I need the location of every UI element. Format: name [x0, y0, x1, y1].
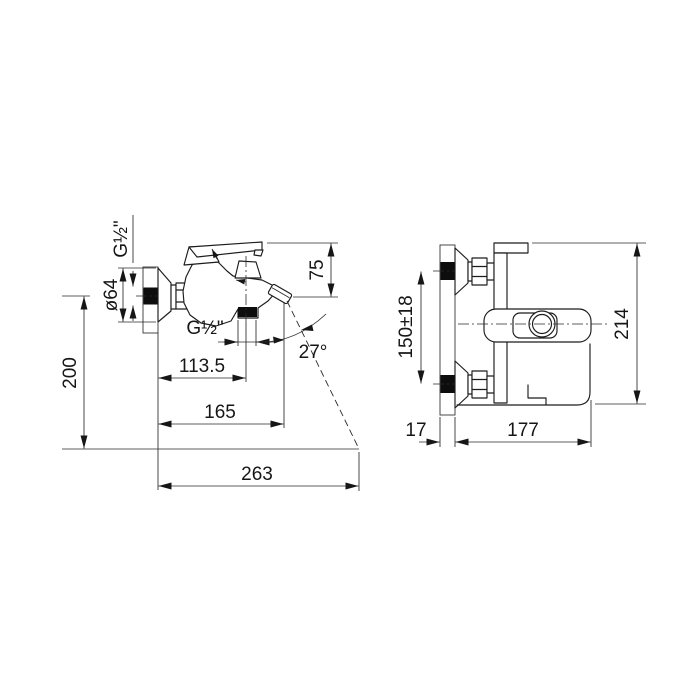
spout-outlet	[238, 307, 257, 317]
dim-label-stream-reach: 263	[241, 464, 273, 485]
faucet-body	[183, 262, 276, 326]
lever-tip	[254, 250, 263, 256]
water-stream-line	[287, 301, 359, 449]
dimension-wall-and-depth: 17 177	[405, 400, 591, 447]
side-view: G½" ø64 200 G½"	[60, 215, 359, 491]
dim-label-overall-width: 214	[612, 308, 633, 340]
dim-label-spout-reach: 165	[204, 402, 236, 423]
bottom-nut	[472, 371, 487, 398]
bottom-flange	[455, 361, 468, 408]
dim-label-flange-diameter: ø64	[101, 278, 122, 311]
top-nut	[472, 258, 487, 285]
aerator	[268, 284, 293, 305]
dimension-stream-angle: 27°	[256, 314, 327, 363]
dim-label-stream-angle: 27°	[299, 342, 328, 363]
bottom-neck	[487, 376, 494, 393]
dimension-stream-reach: 263	[159, 464, 359, 486]
dim-label-thread-top: G½"	[111, 220, 132, 257]
dim-label-wall-thickness: 17	[405, 420, 426, 441]
dim-label-body-depth: 177	[507, 420, 539, 441]
faucet-dimension-drawing: G½" ø64 200 G½"	[0, 0, 700, 700]
dim-label-handle-height: 75	[307, 259, 328, 280]
dimension-spout-reach: 165	[159, 402, 284, 424]
technical-drawing-page: G½" ø64 200 G½"	[0, 0, 700, 700]
bottom-washer	[468, 375, 472, 394]
lever-handle	[189, 242, 262, 257]
dim-label-connection-spacing: 150±18	[396, 295, 417, 358]
dimension-height-to-rim: 200	[60, 296, 90, 449]
top-washer	[468, 262, 472, 281]
front-view: 150±18 214 17 177	[396, 243, 646, 447]
backplate-top-edge	[494, 243, 528, 253]
flange-washer	[171, 285, 176, 309]
dim-label-outlet-offset: 113.5	[179, 356, 225, 377]
dim-label-spout-thread: G½"	[186, 318, 223, 339]
dimension-outlet-offset: 113.5	[159, 356, 246, 378]
diverter-knob	[235, 261, 261, 278]
top-neck	[487, 263, 494, 280]
top-flange	[455, 248, 468, 295]
dimension-connection-spacing: 150±18	[396, 272, 421, 384]
dim-label-height-to-rim: 200	[60, 357, 81, 389]
wall-flange	[158, 268, 171, 322]
backplate-bottom-step	[528, 385, 546, 405]
